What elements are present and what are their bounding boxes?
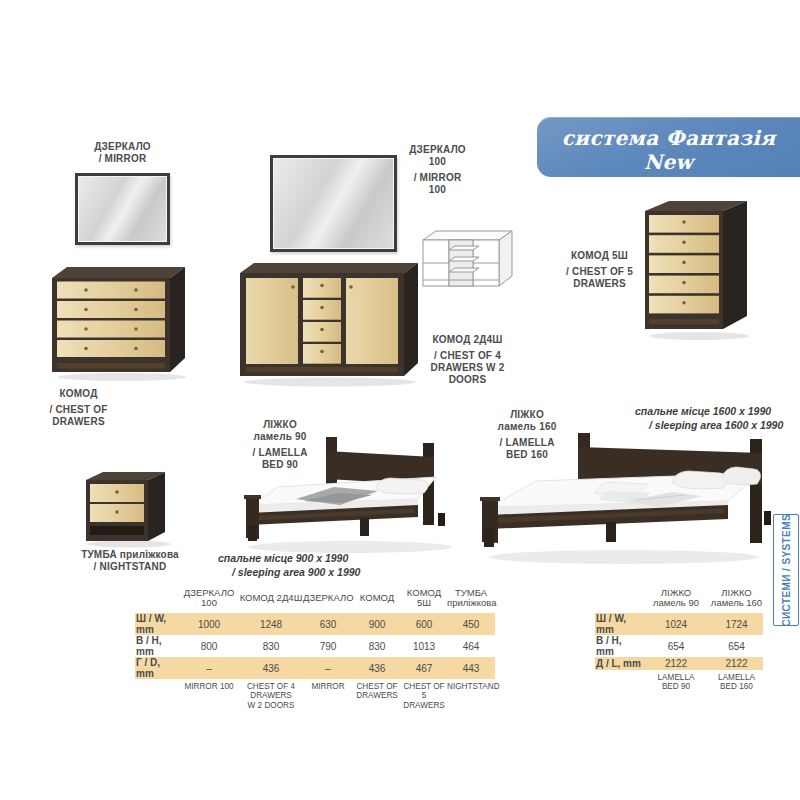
catalog-page: система Фантазія New system Fantaziya Ne… — [0, 0, 800, 800]
table-cell: – — [303, 657, 353, 679]
column-header: ДЗЕРКАЛО — [303, 583, 353, 613]
mirror-100-label: ДЗЕРКАЛО 100 / MIRROR 100 — [400, 144, 475, 196]
table-cell: 830 — [353, 635, 401, 657]
table-cell: 600 — [401, 613, 447, 635]
mirror-label: ДЗЕРКАЛО / MIRROR — [75, 141, 170, 165]
chest-of-drawers-label: КОМОД / CHEST OF DRAWERS — [36, 388, 121, 428]
table-row: В / H, mm 800 830 790 830 1013 464 — [135, 635, 495, 657]
column-header: КОМОД — [353, 583, 401, 613]
bed-160-illustration — [476, 419, 776, 569]
column-header: КОМОД5Ш — [401, 583, 447, 613]
chest-5-label: КОМОД 5Ш / CHEST OF 5 DRAWERS — [562, 250, 637, 290]
mirror-illustration — [75, 173, 170, 245]
table-cell: 436 — [353, 657, 401, 679]
table-header-row: ДЗЕРКАЛО100 КОМОД 2Д4Ш ДЗЕРКАЛО КОМОД КО… — [135, 583, 495, 613]
table-cell: 654 — [710, 635, 763, 657]
table-footer-row: LAMELLABED 90 LAMELLABED 160 — [595, 670, 763, 692]
footer-cell: CHEST OF 4 DRAWERSW 2 DOORS — [239, 679, 303, 710]
row-label: В / H, mm — [135, 635, 179, 657]
chest-2d4-schematic — [420, 228, 516, 298]
footer-cell: CHEST OF 5DRAWERS — [401, 679, 447, 710]
mirror-100-illustration — [270, 155, 397, 252]
footer-cell: LAMELLABED 160 — [710, 670, 763, 692]
table-header-row: ЛІЖКОламель 90 ЛІЖКОламель 160 — [595, 583, 763, 613]
bed-90-illustration — [238, 421, 473, 559]
table-cell: 800 — [179, 635, 239, 657]
banner-title: система Фантазія New — [537, 126, 800, 174]
table-row: Д / L, mm 2122 2122 — [595, 657, 763, 670]
table-row: Г / D, mm – 436 – 436 467 443 — [135, 657, 495, 679]
table-cell: 1724 — [710, 613, 763, 635]
row-label: Ш / W, mm — [135, 613, 179, 635]
table-cell: 2122 — [642, 657, 710, 670]
table-row: Ш / W, mm 1000 1248 630 900 600 450 — [135, 613, 495, 635]
table-cell: 1024 — [642, 613, 710, 635]
nightstand-label: ТУМБА приліжкова / NIGHTSTAND — [70, 549, 190, 573]
column-header: ДЗЕРКАЛО100 — [179, 583, 239, 613]
footer-cell: MIRROR — [303, 679, 353, 710]
dimensions-table: ДЗЕРКАЛО100 КОМОД 2Д4Ш ДЗЕРКАЛО КОМОД КО… — [135, 583, 495, 710]
column-header: ЛІЖКОламель 90 — [642, 583, 710, 613]
table-cell: 790 — [303, 635, 353, 657]
row-label: Д / L, mm — [595, 657, 642, 670]
table-cell: 630 — [303, 613, 353, 635]
chest-5-illustration — [643, 198, 751, 342]
table-cell: – — [179, 657, 239, 679]
column-header: ЛІЖКОламель 160 — [710, 583, 763, 613]
table-cell: 443 — [447, 657, 495, 679]
footer-cell: NIGHTSTAND — [447, 679, 495, 710]
beds-table: ЛІЖКОламель 90 ЛІЖКОламель 160 Ш / W, mm… — [595, 583, 763, 692]
table-cell: 1000 — [179, 613, 239, 635]
footer-cell: MIRROR 100 — [179, 679, 239, 710]
footer-cell: LAMELLABED 90 — [642, 670, 710, 692]
table-cell: 436 — [239, 657, 303, 679]
chest-2d4-illustration — [238, 260, 420, 388]
table-row: Ш / W, mm 1024 1724 — [595, 613, 763, 635]
table-cell: 467 — [401, 657, 447, 679]
table-cell: 450 — [447, 613, 495, 635]
table-cell: 2122 — [710, 657, 763, 670]
column-header: ТУМБАприліжкова — [447, 583, 495, 613]
table-cell: 654 — [642, 635, 710, 657]
systems-side-tab[interactable]: СИСТЕМИ / SYSTEMS — [773, 514, 799, 626]
row-label: В / H, mm — [595, 635, 642, 657]
bed-90-area-label: спальне місце 900 х 1990 / sleeping area… — [218, 551, 360, 579]
table-cell: 900 — [353, 613, 401, 635]
table-cell: 830 — [239, 635, 303, 657]
row-label: Ш / W, mm — [595, 613, 642, 635]
table-cell: 464 — [447, 635, 495, 657]
systems-side-tab-label: СИСТЕМИ / SYSTEMS — [781, 514, 792, 627]
column-header: КОМОД 2Д4Ш — [239, 583, 303, 613]
table-cell: 1013 — [401, 635, 447, 657]
table-row: В / H, mm 654 654 — [595, 635, 763, 657]
footer-cell: CHEST OFDRAWERS — [353, 679, 401, 710]
banner-subtitle: system Fantaziya New — [537, 175, 800, 191]
chest-2d4-label: КОМОД 2Д4Ш / CHEST OF 4 DRAWERS W 2 DOOR… — [420, 334, 515, 386]
system-banner: система Фантазія New system Fantaziya Ne… — [537, 117, 800, 177]
nightstand-illustration — [84, 470, 182, 548]
chest-of-drawers-illustration — [50, 264, 186, 382]
table-footer-row: MIRROR 100 CHEST OF 4 DRAWERSW 2 DOORS M… — [135, 679, 495, 710]
row-label: Г / D, mm — [135, 657, 179, 679]
table-cell: 1248 — [239, 613, 303, 635]
